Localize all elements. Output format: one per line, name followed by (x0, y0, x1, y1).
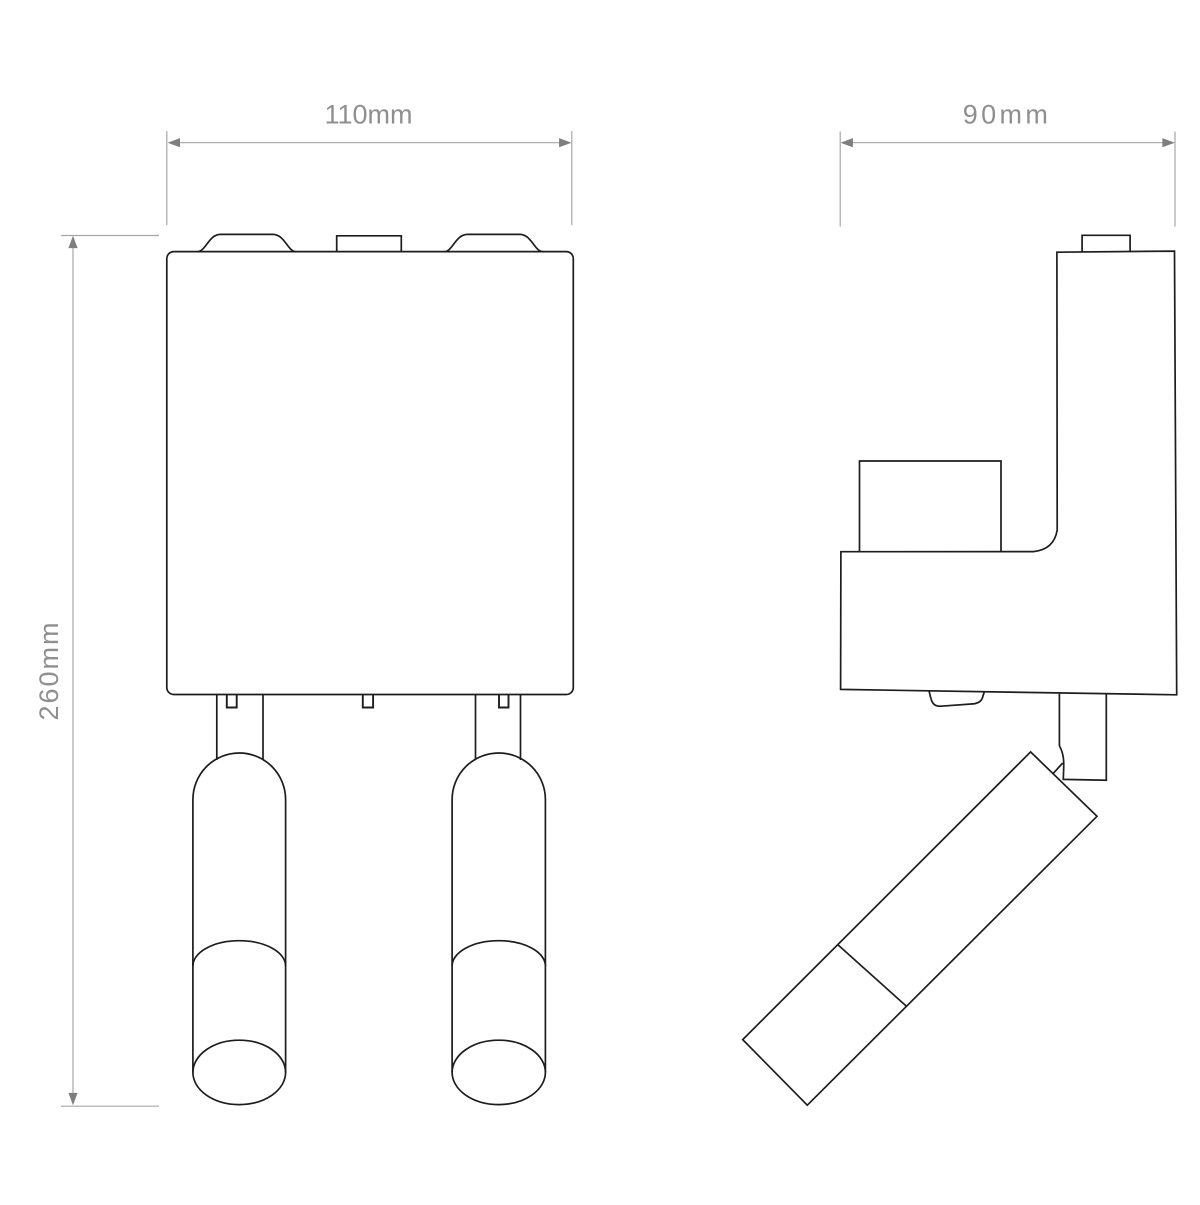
svg-text:110mm: 110mm (324, 100, 412, 130)
svg-text:90mm: 90mm (963, 100, 1052, 130)
svg-text:260mm: 260mm (34, 620, 64, 720)
